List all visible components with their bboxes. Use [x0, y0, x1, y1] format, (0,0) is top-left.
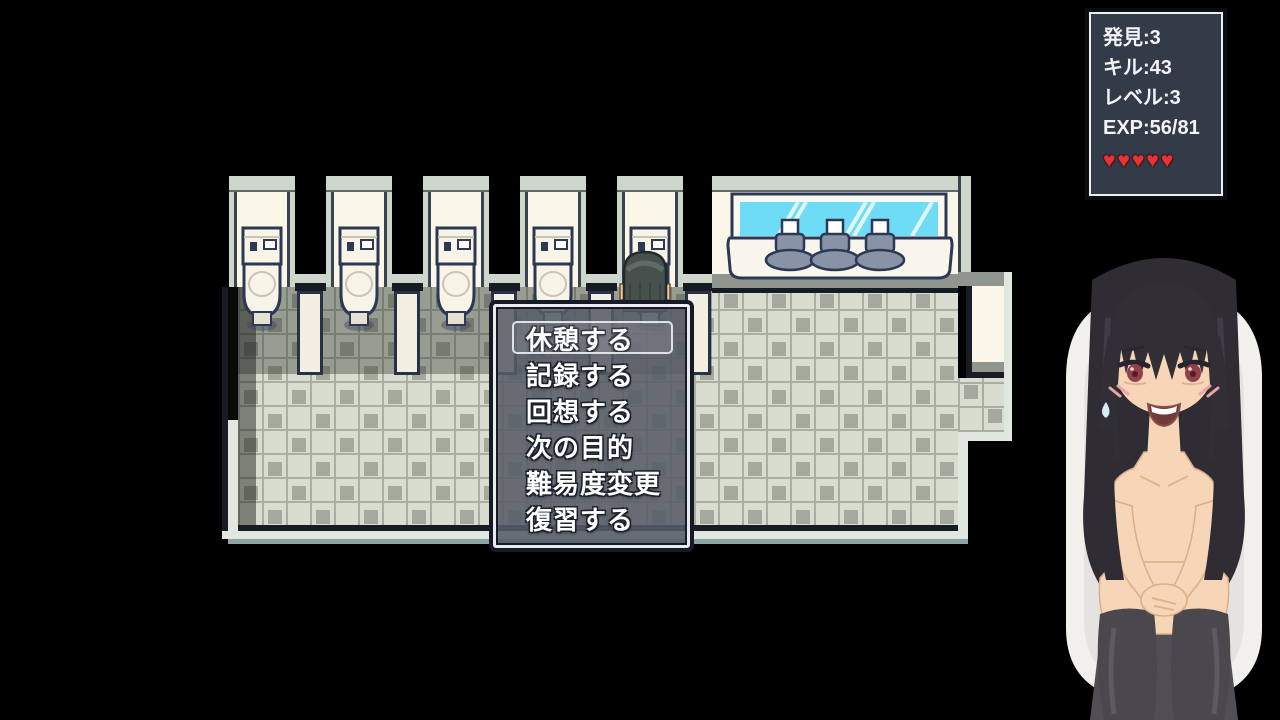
alcove-ledge	[958, 272, 1008, 286]
stall-gap-cap	[489, 274, 520, 283]
stall-gap-cap	[392, 274, 423, 283]
stall-partition	[297, 291, 323, 375]
stall-gap-shadow	[683, 283, 712, 291]
stall-side-wall	[229, 192, 237, 287]
stall-side-wall	[520, 192, 528, 287]
command-menu: 休憩する 記録する 回想する 次の目的 難易度変更 復習する	[493, 304, 690, 548]
stall-side-wall	[675, 192, 683, 287]
hud-panel: 発見:3 キル:43 レベル:3 EXP:56/81 ♥♥♥♥♥	[1085, 8, 1227, 200]
alcove-right-border	[1004, 272, 1012, 441]
right-wall-border	[958, 441, 968, 531]
menu-item-review[interactable]: 復習する	[510, 500, 675, 536]
left-wall-border	[228, 420, 238, 531]
stall-side-wall	[423, 192, 431, 287]
stall-side-wall	[326, 192, 334, 287]
stall-top-wall	[423, 176, 489, 192]
stall-top-wall	[617, 176, 683, 192]
stall-top-wall	[229, 176, 295, 192]
stat-level: レベル:3	[1103, 83, 1209, 113]
sink-counter	[712, 176, 968, 306]
menu-item-record[interactable]: 記録する	[510, 356, 675, 392]
toilet-sprite	[337, 224, 381, 336]
hud-panel-inner: 発見:3 キル:43 レベル:3 EXP:56/81 ♥♥♥♥♥	[1089, 12, 1223, 196]
toilet-sprite	[240, 224, 284, 336]
character-illustration	[1048, 248, 1280, 720]
toilet-sprite	[434, 224, 478, 336]
right-wall	[958, 176, 971, 276]
menu-item-rest[interactable]: 休憩する	[510, 320, 675, 356]
stall-side-wall	[287, 192, 295, 287]
alcove-wall-shadow	[966, 372, 1004, 378]
stall-side-wall	[578, 192, 586, 287]
stat-kills: キル:43	[1103, 53, 1209, 83]
stall-partition	[394, 291, 420, 375]
stat-discoveries: 発見:3	[1103, 23, 1209, 53]
stat-exp: EXP:56/81	[1103, 113, 1209, 143]
stall-gap-shadow	[392, 283, 423, 291]
alcove-floor-tiles	[958, 378, 1004, 432]
stocking-left	[1098, 608, 1157, 720]
stall-gap-cap	[683, 274, 712, 283]
stall-gap-cap	[295, 274, 326, 283]
game-screen: 休憩する 記録する 回想する 次の目的 難易度変更 復習する 発見:3 キル:4…	[0, 0, 1280, 720]
menu-item-change-difficulty[interactable]: 難易度変更	[510, 464, 675, 500]
stall-top-wall	[326, 176, 392, 192]
stall-gap-cap	[586, 274, 617, 283]
alcove-wall	[972, 286, 1004, 362]
stocking-right	[1171, 608, 1230, 720]
stall-side-wall	[481, 192, 489, 287]
alcove-wall-ledge	[972, 362, 1004, 372]
stall-gap-shadow	[489, 283, 520, 291]
stall-gap-shadow	[586, 283, 617, 291]
menu-item-recollection[interactable]: 回想する	[510, 392, 675, 428]
menu-item-next-objective[interactable]: 次の目的	[510, 428, 675, 464]
alcove-bottom-border	[958, 432, 1008, 441]
player-sprite	[614, 232, 676, 312]
heart-icons: ♥♥♥♥♥	[1103, 146, 1209, 176]
stall-side-wall	[384, 192, 392, 287]
stall-gap-shadow	[295, 283, 326, 291]
stall-top-wall	[520, 176, 586, 192]
